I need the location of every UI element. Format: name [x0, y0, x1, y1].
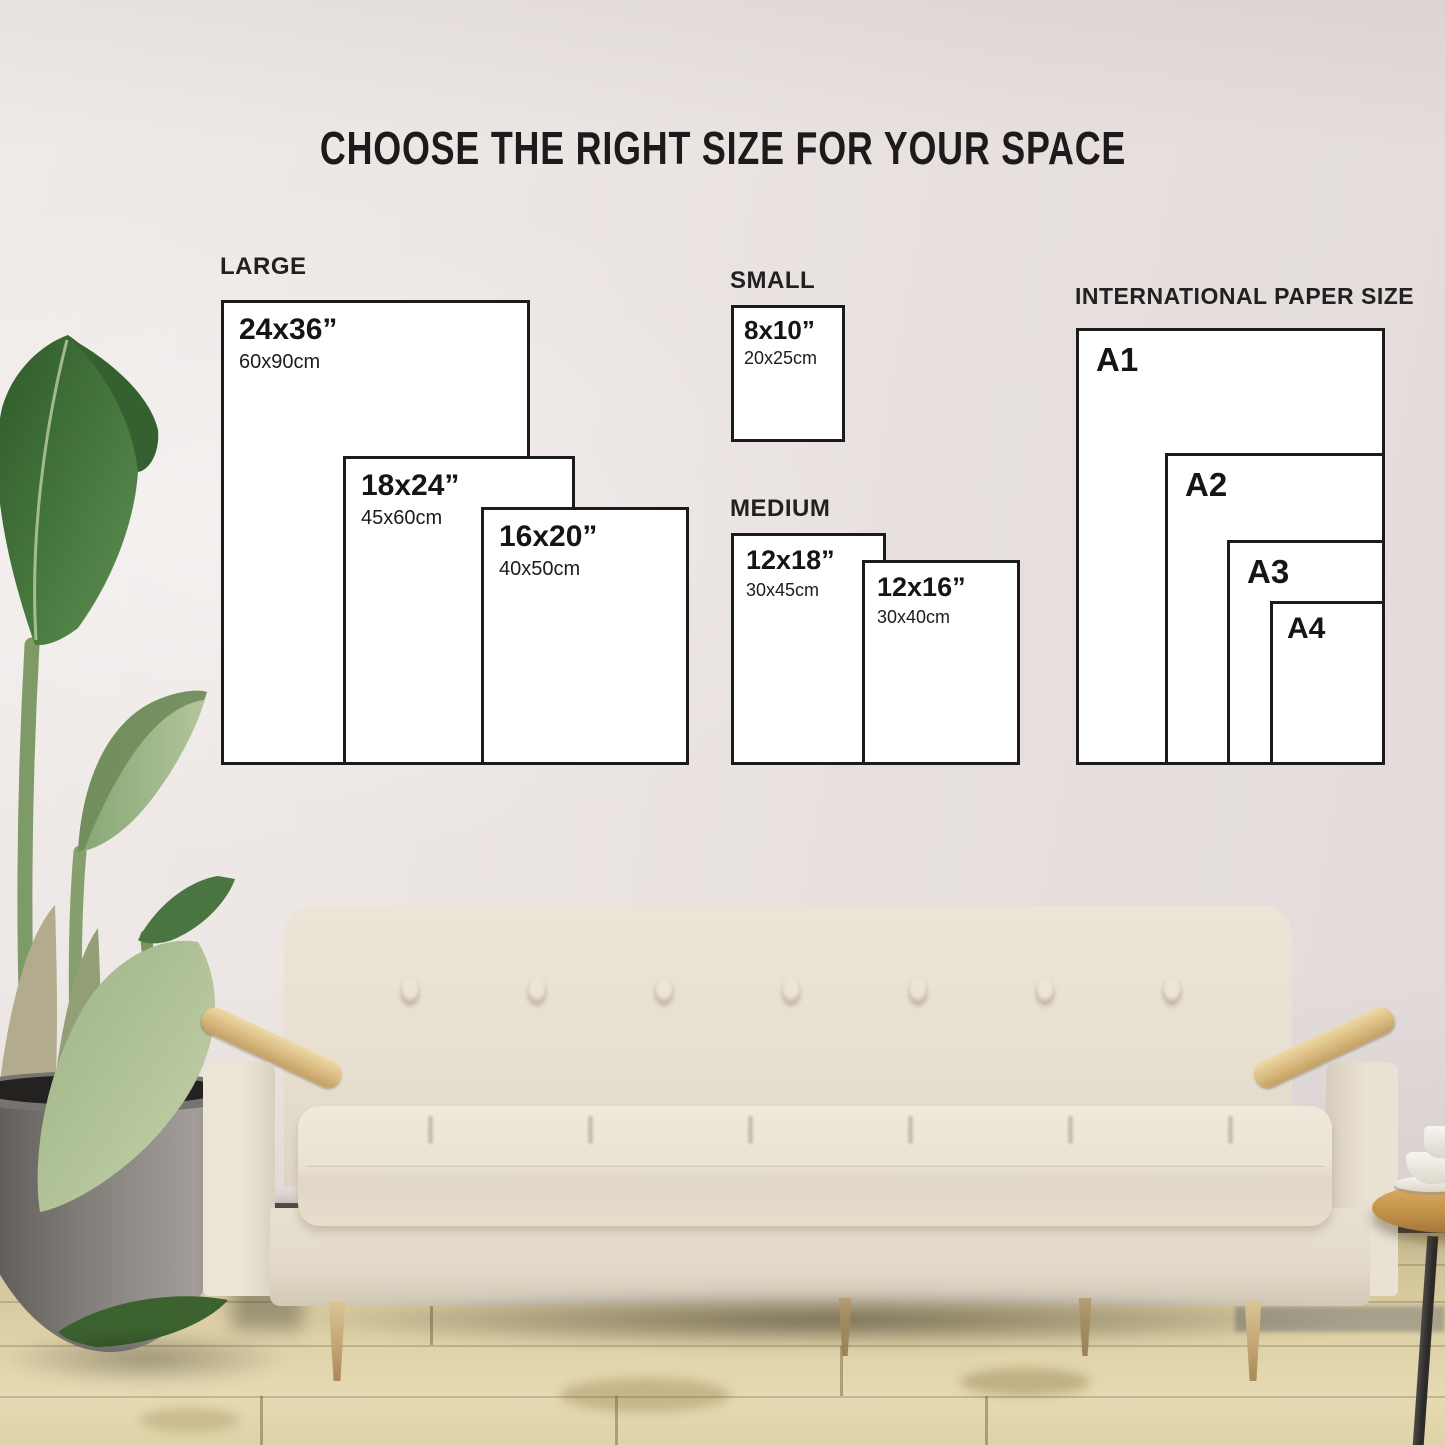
size-label-a1: A1 [1079, 331, 1382, 379]
sofa-tuft-button [401, 978, 419, 1002]
sofa-tuft-button [528, 978, 546, 1002]
cushion-tuft [908, 1116, 913, 1144]
cushion-tuft [1228, 1116, 1233, 1144]
size-label-cm: 30x40cm [877, 607, 1017, 628]
cushion-tuft [588, 1116, 593, 1144]
cushion-piping [306, 1164, 1324, 1167]
size-label-inches: 8x10” [744, 315, 842, 346]
size-label-a3: A3 [1230, 543, 1382, 591]
floor-stain [960, 1368, 1090, 1396]
sofa-left-arm [203, 1062, 275, 1296]
size-label-a4: A4 [1273, 604, 1382, 646]
page-title: CHOOSE THE RIGHT SIZE FOR YOUR SPACE [319, 121, 1125, 175]
group-label-small: SMALL [730, 267, 815, 295]
floor-plank-seam [985, 1396, 988, 1445]
sofa-tuft-button [782, 978, 800, 1002]
sofa-tuft-button [655, 978, 673, 1002]
size-label-inches: 12x16” [877, 572, 1017, 603]
size-box-12x16: 12x16” 30x40cm [862, 560, 1020, 765]
size-box-8x10: 8x10” 20x25cm [731, 305, 845, 442]
cushion-tuft [748, 1116, 753, 1144]
size-label-inches: 16x20” [499, 520, 686, 554]
plant-leaf-small [138, 876, 235, 943]
floor-gray-streak [1235, 1306, 1445, 1332]
sofa-tuft-button [1163, 978, 1181, 1002]
size-label-cm: 40x50cm [499, 558, 686, 581]
cushion-tuft [428, 1116, 433, 1144]
sofa-tuft-button [909, 978, 927, 1002]
group-label-medium: MEDIUM [730, 495, 830, 523]
coffee-cup [1424, 1126, 1445, 1158]
sofa-seat-cushion [298, 1106, 1332, 1226]
cushion-tuft [1068, 1116, 1073, 1144]
size-box-16x20: 16x20” 40x50cm [481, 507, 689, 765]
group-label-international: INTERNATIONAL PAPER SIZE [1075, 283, 1414, 310]
size-box-a4: A4 [1270, 601, 1385, 765]
size-label-a2: A2 [1168, 456, 1382, 504]
size-guide-scene: CHOOSE THE RIGHT SIZE FOR YOUR SPACE LAR… [0, 0, 1445, 1445]
size-label-cm: 20x25cm [744, 348, 842, 369]
sofa-tuft-button [1036, 978, 1054, 1002]
floor-plank-seam [430, 1302, 433, 1345]
floor-stain [560, 1378, 730, 1412]
